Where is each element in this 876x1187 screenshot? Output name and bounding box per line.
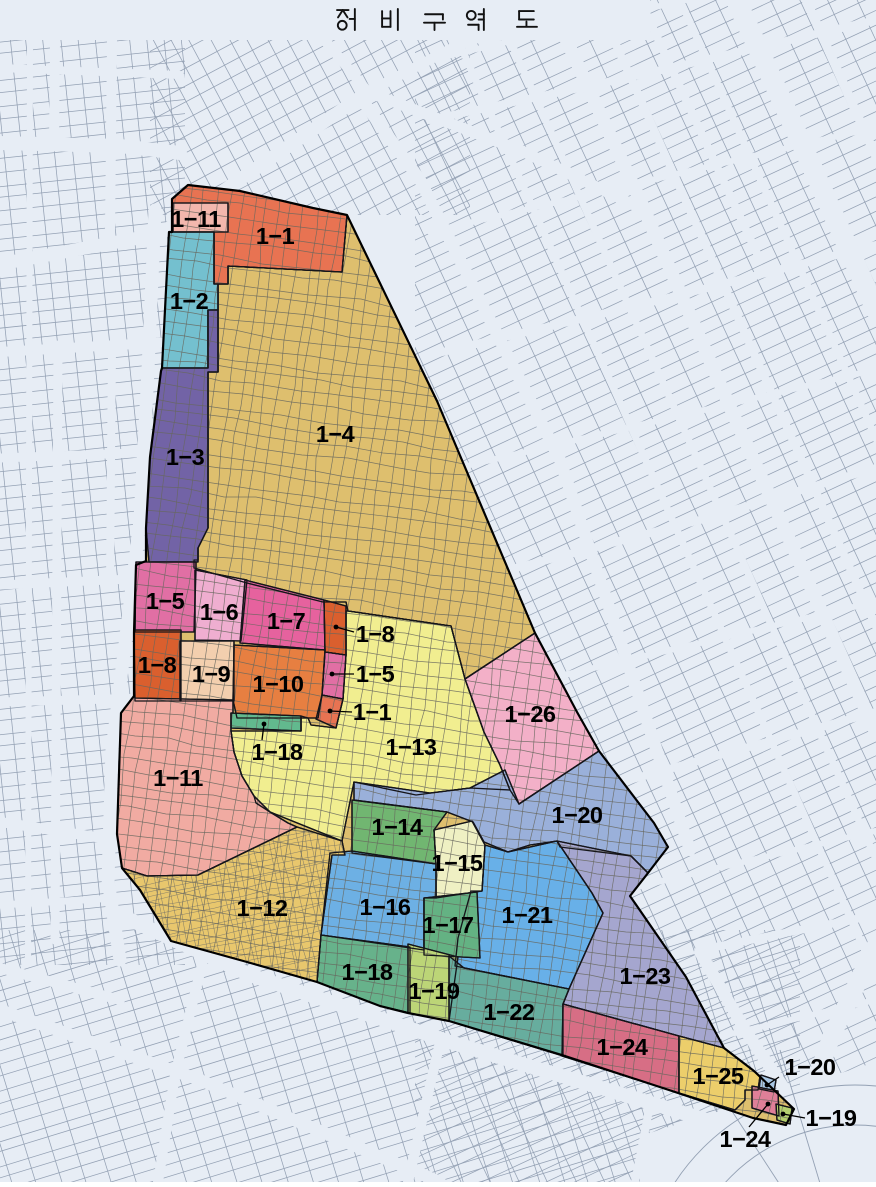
svg-text:1−18: 1−18 [252, 739, 303, 765]
svg-text:1−5: 1−5 [146, 588, 185, 614]
svg-text:1−11: 1−11 [153, 765, 203, 791]
svg-text:1−26: 1−26 [505, 701, 556, 727]
svg-text:1−21: 1−21 [502, 902, 553, 928]
svg-text:1−20: 1−20 [785, 1054, 836, 1080]
svg-text:1−17: 1−17 [423, 912, 474, 938]
svg-text:1−23: 1−23 [620, 963, 671, 989]
svg-text:1−14: 1−14 [372, 814, 423, 840]
svg-text:1−24: 1−24 [597, 1034, 648, 1060]
svg-text:1−13: 1−13 [386, 734, 437, 760]
svg-text:1−20: 1−20 [552, 802, 603, 828]
svg-text:1−1: 1−1 [353, 699, 392, 725]
svg-text:1−3: 1−3 [166, 444, 205, 470]
svg-text:1−15: 1−15 [432, 850, 483, 876]
svg-text:1−12: 1−12 [237, 895, 288, 921]
svg-text:1−1: 1−1 [256, 223, 295, 249]
svg-text:1−4: 1−4 [316, 421, 355, 447]
svg-text:1−24: 1−24 [720, 1126, 771, 1152]
svg-text:1−19: 1−19 [806, 1105, 857, 1131]
svg-text:1−16: 1−16 [360, 894, 411, 920]
svg-text:1−7: 1−7 [267, 608, 306, 634]
svg-text:1−8: 1−8 [138, 652, 177, 678]
svg-text:1−18: 1−18 [342, 959, 393, 985]
svg-text:1−2: 1−2 [170, 288, 209, 314]
svg-text:1−19: 1−19 [409, 978, 460, 1004]
svg-text:1−5: 1−5 [356, 661, 395, 687]
svg-text:1−9: 1−9 [192, 661, 231, 687]
svg-text:1−11: 1−11 [171, 206, 221, 232]
svg-text:1−25: 1−25 [693, 1063, 744, 1089]
svg-text:1−10: 1−10 [253, 671, 304, 697]
svg-text:1−8: 1−8 [356, 621, 395, 647]
svg-text:1−6: 1−6 [200, 599, 239, 625]
svg-text:1−22: 1−22 [484, 999, 535, 1025]
